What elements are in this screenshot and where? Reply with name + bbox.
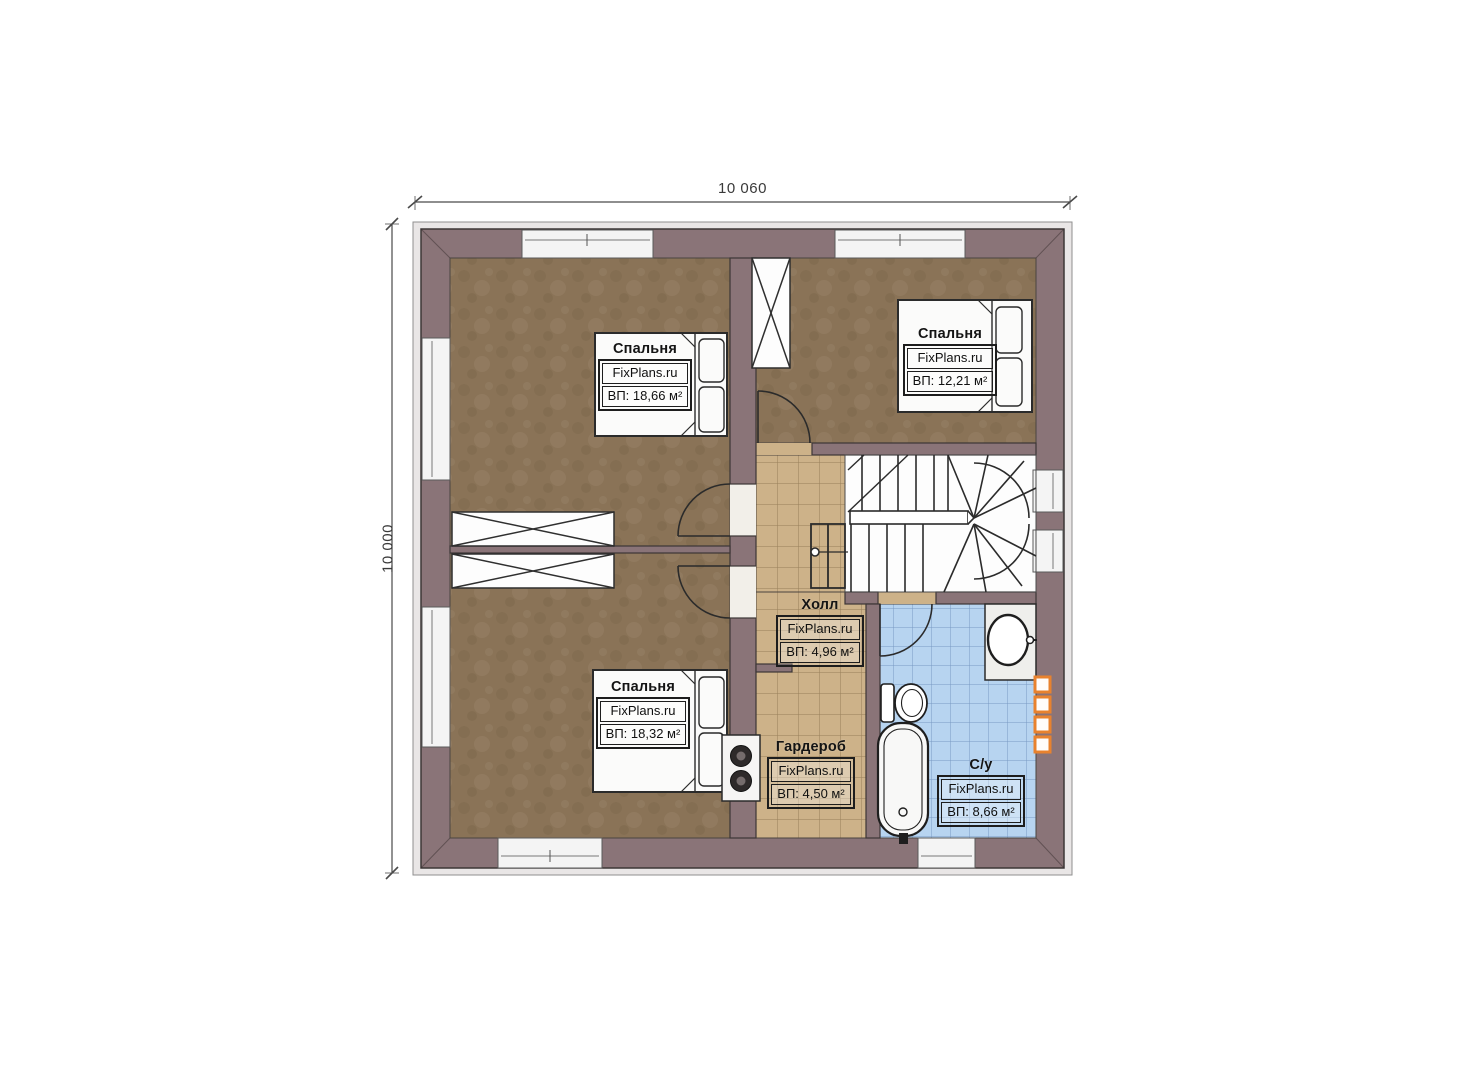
wardrobe-symbol [452,512,614,546]
room-label-box: FixPlans.ru ВП: 4,50 м² [767,757,854,809]
window [1033,470,1063,512]
watermark-text: FixPlans.ru [780,619,859,640]
room-label-box: FixPlans.ru ВП: 4,96 м² [776,615,863,667]
dimension-left-label: 10 000 [380,499,397,599]
window [498,838,602,868]
window [422,338,450,480]
room-name: Холл [801,597,838,613]
room-area: ВП: 8,66 м² [941,802,1020,823]
wardrobe-symbol [452,554,614,588]
room-name: Спальня [918,326,982,342]
room-label-hall: Холл FixPlans.ru ВП: 4,96 м² [761,597,879,667]
watermark-text: FixPlans.ru [941,779,1020,800]
watermark-text: FixPlans.ru [771,761,850,782]
room-label-box: FixPlans.ru ВП: 8,66 м² [937,775,1024,827]
room-area: ВП: 12,21 м² [907,371,994,392]
window [835,230,965,258]
toilet [881,684,927,722]
room-area: ВП: 18,32 м² [600,724,687,745]
window [522,230,653,258]
room-name: Спальня [613,341,677,357]
dimension-top-label: 10 060 [413,180,1072,197]
watermark-text: FixPlans.ru [602,363,689,384]
room-label-box: FixPlans.ru ВП: 18,66 м² [598,359,693,411]
floor-plan-drawing [0,0,1473,1080]
bathtub [878,723,928,844]
room-label-bedroom-bl: Спальня FixPlans.ru ВП: 18,32 м² [581,679,705,749]
room-area: ВП: 4,96 м² [780,642,859,663]
window [422,607,450,747]
watermark-text: FixPlans.ru [907,348,994,369]
floor-plan-page: 10 060 10 000 [0,0,1473,1080]
room-area: ВП: 18,66 м² [602,386,689,407]
room-area: ВП: 4,50 м² [771,784,850,805]
room-name: Гардероб [776,739,846,755]
room-name: Спальня [611,679,675,695]
wardrobe-symbol [752,258,790,368]
room-label-box: FixPlans.ru ВП: 18,32 м² [596,697,691,749]
room-name: С/у [969,757,992,773]
window [918,838,975,868]
window [1033,530,1063,572]
sink-vanity [985,604,1037,680]
room-label-wardrobe: Гардероб FixPlans.ru ВП: 4,50 м² [752,739,870,809]
room-label-bedroom-tl: Спальня FixPlans.ru ВП: 18,66 м² [583,341,707,411]
room-label-bathroom: С/у FixPlans.ru ВП: 8,66 м² [924,757,1038,827]
room-label-bedroom-tr: Спальня FixPlans.ru ВП: 12,21 м² [888,326,1012,396]
watermark-text: FixPlans.ru [600,701,687,722]
room-label-box: FixPlans.ru ВП: 12,21 м² [903,344,998,396]
